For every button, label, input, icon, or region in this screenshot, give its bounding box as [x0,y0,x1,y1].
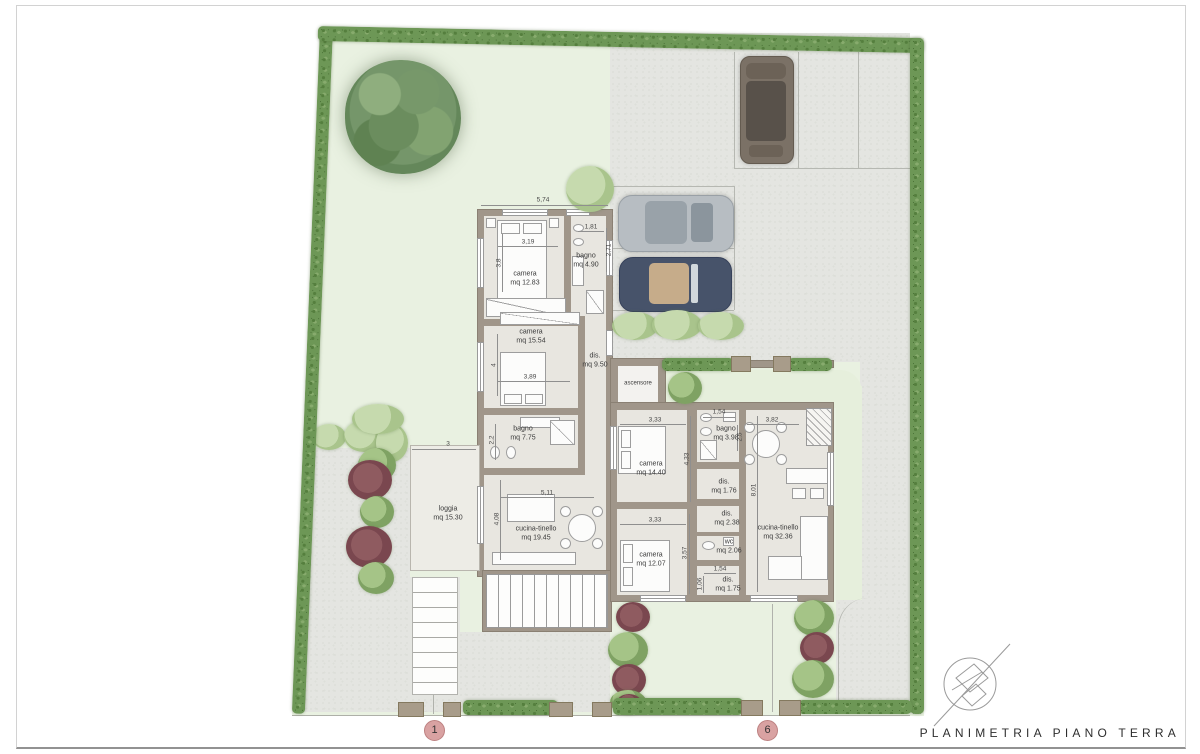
room-name: dis. [715,576,740,585]
bush-purple [800,632,834,664]
room-name: cucina-tinello [758,524,799,533]
room-area: mq 15.30 [433,514,462,523]
room-label-bagno: bagnomq 7.75 [510,425,535,443]
room-label-cucina: cucina-tinellomq 19.45 [516,525,557,543]
gate-post [549,702,573,717]
dim-label: 5,11 [541,490,553,497]
curved-path-line [838,598,873,708]
hedge-bottom-right-segment [798,700,912,714]
car-hood [746,63,786,79]
chair [592,506,603,517]
parking-stall-line [612,186,734,187]
dim-line [498,381,570,382]
room-name: dis. [582,352,607,361]
bush-purple [346,526,392,568]
room-area: mq 9.50 [582,361,607,370]
unit6-garden-right [836,386,862,600]
unit1-staircase [486,574,608,628]
window [640,595,686,602]
room-name: camera [516,328,545,337]
bush [360,496,394,528]
car-roof [746,81,786,141]
dim-label: 2,71 [606,244,613,257]
bush-parking-strip [698,312,744,340]
car-silver [618,195,734,252]
pillow [504,394,522,404]
wardrobe [500,312,580,325]
car-convertible [619,257,732,312]
hedge-unit6-fence-left [662,358,734,371]
dim-label: 2,5 [737,432,744,441]
bush-purple [616,602,650,632]
room-area: mq 12.07 [636,560,665,569]
bush-courtyard-tree [668,372,702,404]
dim-label: 3,33 [649,517,662,524]
room-label-bagno: bagnomq 3.98 [713,425,738,443]
dim-label: 3,33 [649,417,662,424]
unit-marker-6: 6 [757,720,778,741]
bidet [700,427,712,436]
hedge-right [910,38,924,714]
dim-label: 4,33 [684,453,691,466]
drawing-title: PLANIMETRIA PIANO TERRA [920,726,1180,740]
room-name: camera [636,551,665,560]
unit1-dis-floor [585,316,606,475]
room-label-camera: cameramq 12.83 [510,270,539,288]
gate-post [741,700,763,716]
room-label-cucina: cucina-tinellomq 32.36 [758,524,799,542]
hedge-bottom-center-segment [613,698,743,715]
room-name: camera [636,460,665,469]
gate-post [398,702,424,717]
room-label-camera: cameramq 12.07 [636,551,665,569]
unit-marker-1: 1 [424,720,445,741]
kitchen-island [792,488,806,499]
external-stair-hatch [806,408,832,446]
dim-line [703,417,735,418]
room-name: bagno [713,425,738,434]
chair [560,538,571,549]
dim-label: 1,06 [697,578,704,591]
pillow [523,223,542,234]
bush [312,424,346,450]
dim-line [412,449,476,450]
toilet [702,541,715,550]
window [477,238,484,288]
room-name: cucina-tinello [516,525,557,534]
bush [608,632,648,668]
bush-parking-strip [652,310,702,340]
bush [358,562,394,594]
dim-line [620,524,686,525]
room-area: mq 32.36 [758,533,799,542]
north-arrow-icon [930,638,1018,730]
pillow [621,430,631,448]
parking-stall-line [734,186,735,310]
bidet [573,238,584,246]
room-name: wc [716,538,741,547]
shower [700,440,717,460]
dim-label: 2,2 [489,435,496,444]
room-area: mq 19.45 [516,534,557,543]
pillow [501,223,520,234]
chair [592,538,603,549]
room-label-loggia: loggiamq 15.30 [433,505,462,523]
kitchen-counter [492,552,576,565]
dim-label: 4 [491,363,498,367]
window [477,342,484,392]
marker-extension-line [772,604,773,712]
room-area: mq 12.83 [510,279,539,288]
hedge-bottom-left-segment [463,700,558,715]
dim-label: 1,81 [585,224,598,231]
dim-line [747,424,799,425]
car-windshield [691,264,698,303]
dim-label: 3,82 [766,417,779,424]
room-label-dis: dis.mq 9.50 [582,352,607,370]
dim-line [578,231,604,232]
chair [776,454,787,465]
room-area: mq 1.75 [715,585,740,594]
room-name: bagno [510,425,535,434]
room-area: mq 2.38 [714,519,739,528]
room-area: mq 7.75 [510,434,535,443]
dim-line [481,205,608,206]
window [610,426,617,470]
pillow [621,451,631,469]
room-area: mq 14.40 [636,469,665,478]
fence-post [773,356,791,372]
sofa [507,494,555,522]
room-label-camera: cameramq 14.40 [636,460,665,478]
parking-stall-line [734,52,735,168]
room-name: dis. [714,510,739,519]
room-name: camera [510,270,539,279]
sofa-l-horizontal [768,556,802,580]
room-label-ascensore: ascensore [624,380,652,388]
room-name: loggia [433,505,462,514]
chair [560,506,571,517]
shower [550,420,575,445]
bush [792,660,834,698]
tree-large [345,60,461,174]
room-area: mq 1.76 [711,487,736,496]
dim-label: 1,54 [713,409,726,416]
parking-stall-line [798,52,799,168]
window [827,452,834,506]
bush-purple [348,460,392,500]
bidet [506,446,516,459]
gate-post [592,702,612,717]
gate-post [779,700,801,716]
car-rear-window [691,203,713,242]
dim-line [498,246,558,247]
room-label-bagno: bagnomq 4.90 [573,252,598,270]
fence-post [731,356,751,372]
dim-label: 4,08 [494,513,501,526]
window [750,595,798,602]
kitchen-island [810,488,824,499]
dim-label: 5,74 [537,197,550,204]
dim-line [757,416,758,592]
dim-label: 3,89 [524,374,537,381]
nightstand [549,218,559,228]
dim-line [620,424,686,425]
dim-label: 3,19 [522,239,535,246]
kitchen-counter [786,468,828,484]
parking-stall-line [734,168,910,169]
room-name: bagno [573,252,598,261]
room-label-camera: cameramq 15.54 [516,328,545,346]
bush [352,404,404,434]
room-area: mq 3.98 [713,434,738,443]
pillow [525,394,543,404]
parking-stall-line [858,52,859,168]
dim-line [704,573,736,574]
dim-line [689,514,690,594]
window [502,209,548,216]
room-label-dis: dis.mq 1.75 [715,576,740,594]
window [477,486,484,544]
dim-label: 3,8 [496,258,503,267]
dim-label: 3,57 [682,547,689,560]
room-name: ascensore [624,380,652,388]
car-brown [740,56,794,164]
dim-label: 8,01 [751,484,758,497]
room-label-dis: dis.mq 1.76 [711,478,736,496]
bush [794,600,834,636]
gate-post [443,702,461,717]
room-label-dis: dis.mq 2.38 [714,510,739,528]
room-label-wc: wcmq 2.06 [716,538,741,556]
car-open-interior [649,263,689,304]
dim-line [500,497,594,498]
shower [586,290,604,314]
car-cabin [645,201,687,244]
room-area: mq 15.54 [516,337,545,346]
dim-label: 1,54 [714,566,727,573]
pillow [623,567,633,586]
dim-label: 3 [446,441,450,448]
car-trunk [749,145,783,157]
room-area: mq 2.06 [716,547,741,556]
nightstand [486,218,496,228]
chair [744,454,755,465]
dining-table [568,514,596,542]
hedge-unit6-fence-right [788,358,832,371]
sofa-l-vertical [800,516,828,580]
bed [497,220,547,306]
room-area: mq 4.90 [573,261,598,270]
pillow [623,544,633,563]
exterior-steps [412,577,458,695]
room-name: dis. [711,478,736,487]
